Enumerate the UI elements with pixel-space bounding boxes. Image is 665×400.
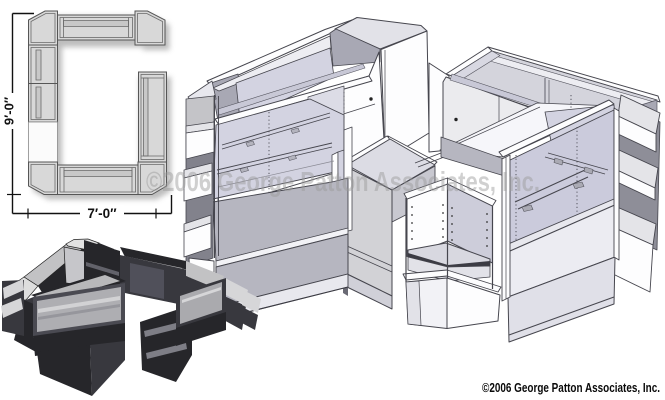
svg-text:9′-0″: 9′-0″ [1, 97, 16, 125]
svg-text:©2006 George Patton Associates: ©2006 George Patton Associates, Inc. [482, 380, 660, 395]
svg-text:©2006 George Patton Associates: ©2006 George Patton Associates, Inc. [146, 166, 540, 197]
svg-text:7′-0″: 7′-0″ [87, 206, 117, 221]
